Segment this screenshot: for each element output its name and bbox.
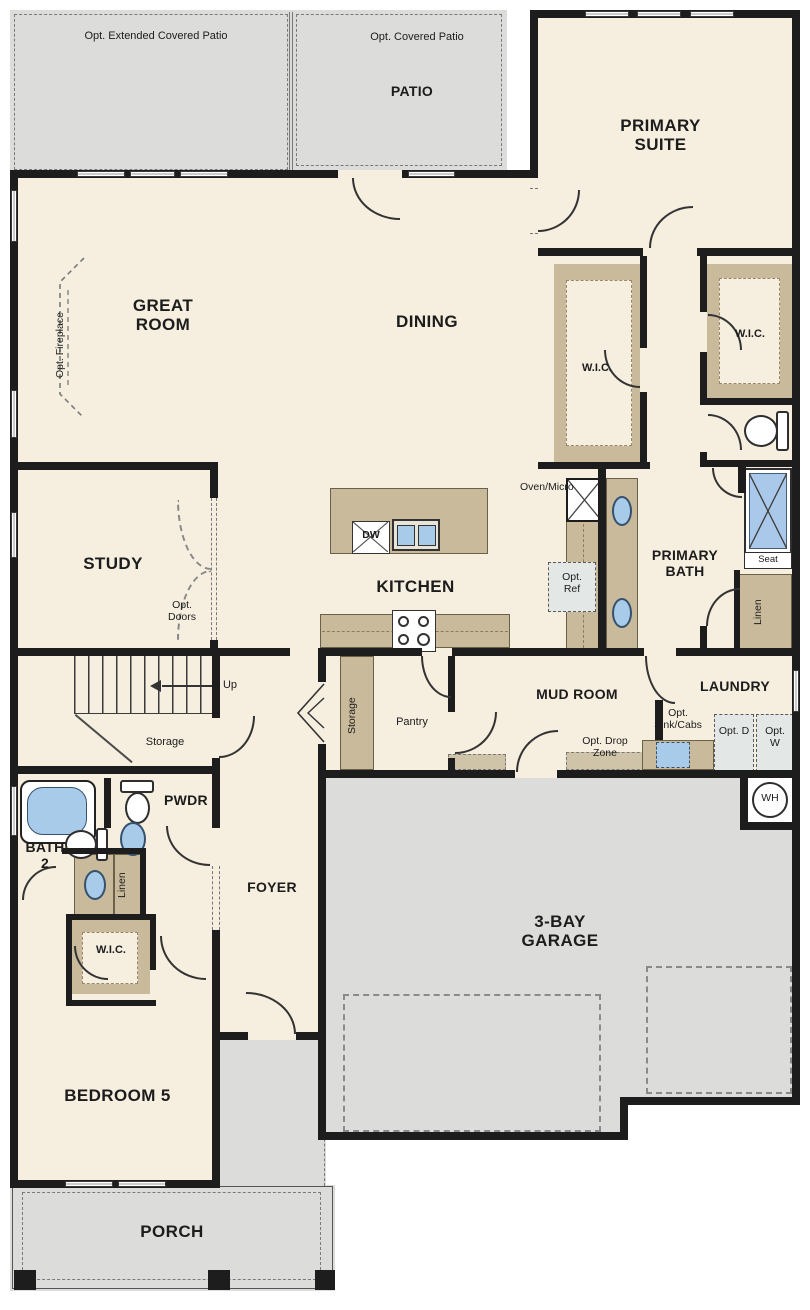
wall — [210, 462, 218, 498]
wic2-door-opening — [700, 312, 707, 352]
wall — [212, 930, 220, 1188]
opt-drop-zone-label: Opt. Drop Zone — [570, 736, 640, 760]
porch-post — [14, 1270, 36, 1290]
wall — [296, 1032, 326, 1040]
linen-label: Linen — [117, 858, 137, 912]
wall — [150, 914, 156, 970]
wall — [212, 1032, 248, 1040]
storage-label: Storage — [132, 736, 198, 748]
wall — [318, 648, 326, 684]
wall — [538, 462, 650, 469]
toilet-icon — [116, 780, 158, 826]
window — [793, 670, 799, 712]
storage-closet-label: Storage — [347, 686, 367, 746]
study-label: STUDY — [73, 554, 153, 573]
bedroom5-label: BEDROOM 5 — [45, 1086, 190, 1105]
wall — [66, 914, 156, 920]
wall — [10, 170, 18, 1188]
dw-label: DW — [354, 530, 388, 542]
primary-bath-label: PRIMARY BATH — [637, 548, 733, 579]
porch-post — [315, 1270, 335, 1290]
wall — [452, 648, 644, 656]
garage-label: 3-BAY GARAGE — [498, 912, 622, 950]
opt-ref-label: Opt. Ref — [554, 572, 590, 596]
wall — [620, 1097, 800, 1105]
kitchen-label: KITCHEN — [368, 577, 463, 596]
foyer-label: FOYER — [240, 880, 304, 896]
great-room-label: GREAT ROOM — [105, 296, 221, 334]
wall — [66, 914, 72, 1006]
window — [130, 171, 175, 177]
linen-label: Linen — [753, 584, 773, 640]
window — [77, 171, 125, 177]
dining-label: DINING — [383, 312, 471, 331]
oven-micro-label: Oven/Micro — [520, 482, 562, 494]
pwdr-label: PWDR — [158, 793, 214, 809]
mud-room-label: MUD ROOM — [535, 687, 619, 703]
wall — [598, 469, 606, 655]
opt-doors-label: Opt. Doors — [160, 600, 204, 624]
opt-laundry-sink — [656, 742, 690, 768]
opt-covered-patio-label: Opt. Covered Patio — [352, 31, 482, 43]
kitchen-sink-icon — [392, 519, 440, 551]
porch-post — [208, 1270, 230, 1290]
opt-dryer-box — [714, 714, 754, 772]
suite-hall-opening — [643, 248, 697, 256]
laundry-label: LAUNDRY — [688, 679, 782, 695]
shower-icon — [744, 468, 792, 554]
primary-suite-label: PRIMARY SUITE — [598, 116, 723, 154]
wall — [700, 460, 792, 467]
drop-zone-bench2 — [448, 754, 506, 770]
sink-icon — [84, 870, 106, 900]
opt-washer-label: Opt. W — [759, 726, 791, 750]
toilet-icon — [62, 826, 110, 864]
wall — [10, 1180, 220, 1188]
up-label: Up — [216, 679, 244, 691]
opt-extended-patio-label: Opt. Extended Covered Patio — [60, 30, 252, 42]
wall — [10, 462, 218, 470]
wh-label: WH — [752, 793, 788, 805]
entry-walk — [220, 1040, 326, 1186]
window — [118, 1181, 166, 1187]
wall — [318, 770, 800, 778]
suite-dashed-opening — [530, 188, 538, 234]
wall — [676, 648, 800, 656]
wall — [318, 648, 422, 656]
wall — [740, 778, 748, 828]
window — [585, 11, 629, 17]
sink-icon — [612, 496, 632, 526]
window — [11, 190, 17, 242]
wall — [530, 10, 538, 178]
window — [637, 11, 681, 17]
seat-label: Seat — [746, 555, 790, 566]
wall — [740, 822, 800, 830]
wall — [448, 758, 455, 770]
window — [408, 171, 455, 177]
patio-label: PATIO — [375, 84, 449, 100]
patio-door-opening — [338, 170, 402, 178]
floor-plan: Opt. Extended Covered Patio Opt. Covered… — [0, 0, 810, 1310]
wic1-door-opening — [640, 348, 647, 392]
cooktop-icon — [392, 610, 436, 652]
wall — [792, 10, 800, 1105]
opt-dryer-label: Opt. D — [718, 726, 750, 738]
opt-doors-opening — [211, 498, 217, 640]
opt-sink-cabs-label: Opt. Sink/Cabs — [650, 708, 706, 732]
window — [690, 11, 734, 17]
window — [11, 786, 17, 836]
porch-label: PORCH — [130, 1222, 214, 1241]
wall — [700, 398, 792, 405]
wall — [318, 1132, 628, 1140]
sink-icon — [612, 598, 632, 628]
garage-bay-outline — [343, 994, 601, 1132]
wic-label: W.I.C. — [78, 944, 144, 956]
wic-label: W.I.C. — [710, 328, 790, 340]
wall — [104, 778, 111, 828]
garage-bay-outline — [646, 966, 792, 1094]
stair-arrow-head — [150, 680, 161, 692]
wall — [66, 1000, 156, 1006]
stair-arrow-line — [162, 685, 214, 687]
toilet-icon — [742, 408, 790, 454]
wall — [700, 452, 707, 467]
patio-divider — [289, 12, 293, 172]
foyer-dashed-opening — [212, 866, 220, 930]
window — [11, 512, 17, 558]
bath2-label: BATH 2 — [22, 840, 68, 871]
wall — [140, 850, 146, 916]
wall — [62, 848, 146, 854]
cased-opening-icon — [294, 682, 326, 744]
window — [65, 1181, 113, 1187]
pantry-label: Pantry — [386, 716, 438, 728]
opt-fireplace-label: Opt. Fireplace — [55, 282, 73, 408]
window — [180, 171, 228, 177]
wall — [318, 778, 326, 1140]
wall — [10, 648, 290, 656]
window — [11, 390, 17, 438]
wall — [10, 766, 218, 774]
wic-label: W.I.C. — [562, 362, 632, 374]
